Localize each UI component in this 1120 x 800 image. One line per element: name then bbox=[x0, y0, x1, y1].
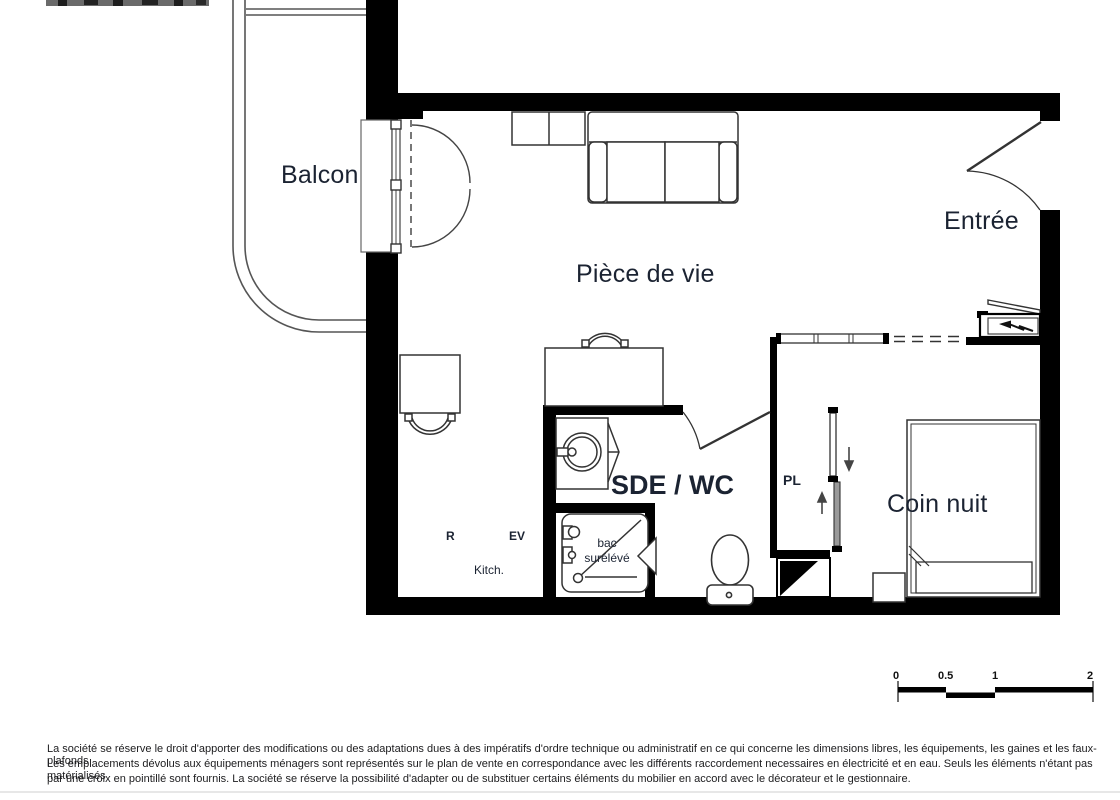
floor-plan-page: Balcon Pièce de vie Entrée SDE / WC Coin… bbox=[0, 0, 1120, 800]
duct-shaft bbox=[777, 558, 830, 597]
disclaimer-line-3: par une croix en pointillé sont fournis.… bbox=[47, 773, 1107, 785]
dining-table-and-chair bbox=[400, 355, 460, 434]
kitchen-label: Kitch. bbox=[474, 563, 504, 577]
room-label-balcony: Balcon bbox=[281, 161, 359, 190]
closet-sliding-doors bbox=[818, 407, 853, 552]
balcony-french-door bbox=[361, 120, 470, 253]
room-label-bathroom: SDE / WC bbox=[611, 470, 734, 501]
partition-track bbox=[776, 333, 966, 344]
entrance-door bbox=[967, 122, 1041, 210]
scale-tick-0: 0 bbox=[893, 670, 899, 682]
toilet bbox=[707, 535, 753, 605]
room-label-closet: PL bbox=[783, 472, 801, 488]
bathroom-door bbox=[683, 412, 770, 449]
nightstand bbox=[873, 573, 905, 602]
scale-tick-2: 2 bbox=[1087, 670, 1093, 682]
room-label-living: Pièce de vie bbox=[576, 260, 715, 289]
top-edge-artifact bbox=[46, 0, 209, 6]
scale-tick-05: 0.5 bbox=[938, 670, 953, 682]
desk-and-chair bbox=[545, 333, 663, 406]
scale-bar bbox=[898, 681, 1093, 702]
side-table bbox=[512, 112, 585, 145]
fridge-label: R bbox=[446, 529, 455, 543]
room-label-entrance: Entrée bbox=[944, 207, 1019, 236]
scale-tick-1: 1 bbox=[992, 670, 998, 682]
washing-machine bbox=[556, 418, 619, 489]
sink-label: EV bbox=[509, 529, 525, 543]
electrical-panel bbox=[980, 300, 1040, 337]
room-label-sleeping: Coin nuit bbox=[887, 490, 987, 519]
sofa bbox=[588, 112, 738, 203]
shower-label-line2: surélévé bbox=[575, 551, 639, 565]
shower-label-line1: bac bbox=[575, 536, 639, 550]
